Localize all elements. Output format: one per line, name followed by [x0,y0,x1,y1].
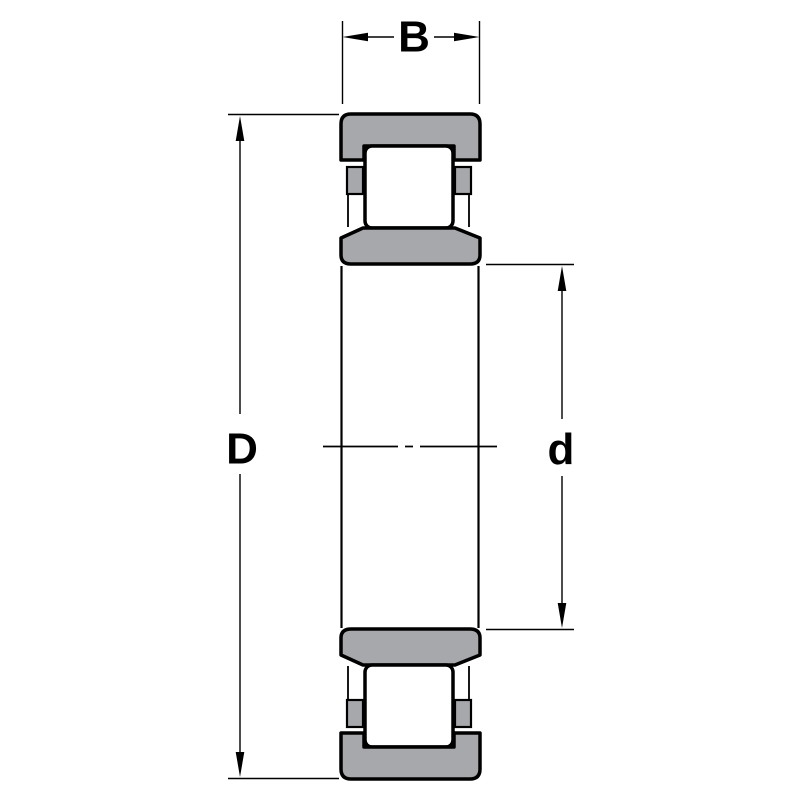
dimension-b-arrow-right [454,33,480,41]
cage-bar-bottom-right [455,700,471,727]
roller-top-section [365,146,453,228]
width-dimension-label: B [398,13,430,62]
bearing-drawing-canvas: B D d [0,0,800,800]
inner-ring-top-section [341,228,480,264]
dimension-d-bore-arrow-bottom [558,603,567,628]
cylindrical-roller-bearing-section-drawing: B D d [0,0,800,800]
dimension-d-outer-arrow-top [236,116,245,141]
bore-diameter-dimension-label: d [548,425,575,474]
dimension-d-outer-arrow-bottom [236,752,245,777]
inner-ring-bottom-section [341,629,480,665]
cage-bar-top-right [455,167,471,194]
outer-diameter-dimension-label: D [226,425,258,474]
roller-bottom-section [365,665,453,747]
cage-bar-bottom-left [347,700,363,727]
dimension-b-arrow-left [343,33,369,41]
cage-bar-top-left [347,167,363,194]
dimension-d-bore-arrow-top [558,266,567,291]
